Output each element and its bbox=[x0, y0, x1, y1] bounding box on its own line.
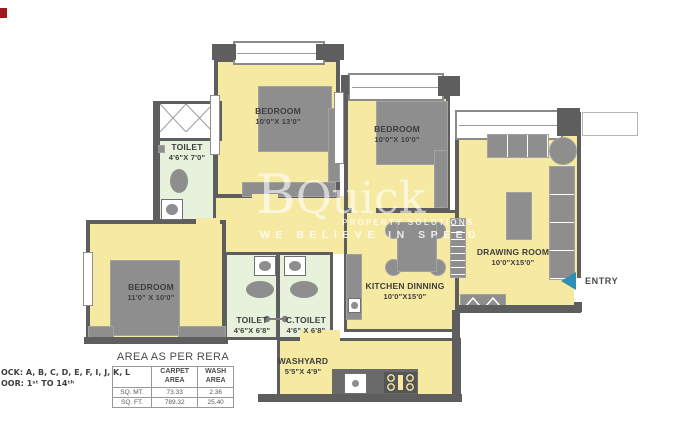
kitchen-counter-icon bbox=[450, 218, 466, 278]
entry-arrow-icon bbox=[561, 272, 576, 290]
side-balcony-outline bbox=[582, 112, 638, 136]
toilet-bowl-icon bbox=[290, 281, 318, 298]
label-kitchen: KITCHEN DINNING10'0"X15'0" bbox=[364, 281, 446, 303]
wardrobe-icon bbox=[434, 150, 448, 208]
area-carpet-sqmt: 73.33 bbox=[152, 387, 198, 397]
balcony-top-left bbox=[233, 41, 325, 65]
area-unit: SQ. FT. bbox=[113, 397, 152, 407]
block-note-line2: OOR: 1ˢᵗ TO 14ᵗʰ bbox=[1, 379, 130, 390]
door-opening bbox=[196, 218, 220, 226]
passage-area bbox=[213, 196, 346, 254]
wall-stub bbox=[212, 44, 236, 60]
label-washyard: WASHYARD5'5"X 4'9" bbox=[272, 356, 334, 378]
window bbox=[83, 252, 93, 306]
round-table-icon bbox=[549, 137, 577, 165]
area-col-wash: WASH AREA bbox=[198, 367, 234, 388]
label-bedroom-top: BEDROOM10'0"X 13'0" bbox=[238, 106, 318, 128]
window-line bbox=[352, 87, 440, 88]
sink-icon bbox=[161, 199, 183, 220]
entry-label: ENTRY bbox=[585, 276, 618, 286]
outer-wall bbox=[258, 394, 462, 402]
label-toilet-bottom: TOILET4'6"X 6'8" bbox=[226, 315, 278, 337]
floor-plan-page: { "colors": { "wall": "#5E5E5E", "room_f… bbox=[0, 0, 690, 440]
stove-icon bbox=[384, 372, 417, 393]
sink-icon bbox=[284, 256, 306, 276]
wall-stub bbox=[438, 76, 460, 96]
area-carpet-sqft: 789.32 bbox=[152, 397, 198, 407]
outer-wall bbox=[153, 101, 158, 222]
area-table-title: AREA AS PER RERA bbox=[110, 351, 236, 363]
label-bedroom-right: BEDROOM10'0"X 10'0" bbox=[357, 124, 437, 146]
table-row: SQ. MT. 73.33 2.36 bbox=[113, 387, 234, 397]
window bbox=[334, 92, 344, 164]
door-opening bbox=[352, 208, 376, 216]
coffee-table-icon bbox=[506, 192, 532, 240]
area-col-carpet: CARPET AREA bbox=[152, 367, 198, 388]
label-toilet-top: TOILET4'6"X 7'0" bbox=[161, 142, 213, 164]
sink-icon bbox=[254, 256, 276, 276]
toilet-bowl-icon bbox=[246, 281, 274, 298]
outer-wall bbox=[84, 337, 228, 344]
label-bedroom-left: BEDROOM11'0" X 10'0" bbox=[108, 282, 194, 304]
kitchen-sink-icon bbox=[348, 298, 361, 313]
area-table: CARPET AREA WASH AREA SQ. MT. 73.33 2.36… bbox=[112, 366, 234, 408]
table-row: SQ. FT. 789.32 25.40 bbox=[113, 397, 234, 407]
dining-table-icon bbox=[397, 222, 437, 272]
area-wash-sqft: 25.40 bbox=[198, 397, 234, 407]
label-c-toilet: C.TOILET4'6" X 6'8" bbox=[279, 315, 333, 337]
toilet-bowl-icon bbox=[170, 169, 188, 193]
label-drawing-room: DRAWING ROOM10'0"X15'0" bbox=[472, 247, 554, 269]
area-wash-sqmt: 2.36 bbox=[198, 387, 234, 397]
balcony-top-right bbox=[348, 73, 444, 101]
sofa-icon bbox=[487, 134, 549, 158]
corner-color-marker bbox=[0, 8, 7, 18]
wall-stub bbox=[557, 108, 580, 136]
wall-stub bbox=[316, 44, 344, 60]
door-opening bbox=[252, 194, 278, 202]
window-line bbox=[459, 125, 559, 126]
washing-machine-icon bbox=[344, 373, 367, 394]
outer-wall bbox=[452, 310, 460, 398]
outer-wall bbox=[455, 305, 581, 313]
block-floor-note: OCK: A, B, C, D, E, F, I, J, K, L OOR: 1… bbox=[1, 368, 130, 390]
block-note-line1: OCK: A, B, C, D, E, F, I, J, K, L bbox=[1, 368, 130, 379]
shower-hatch-icon bbox=[160, 104, 213, 132]
window-line bbox=[237, 53, 321, 54]
